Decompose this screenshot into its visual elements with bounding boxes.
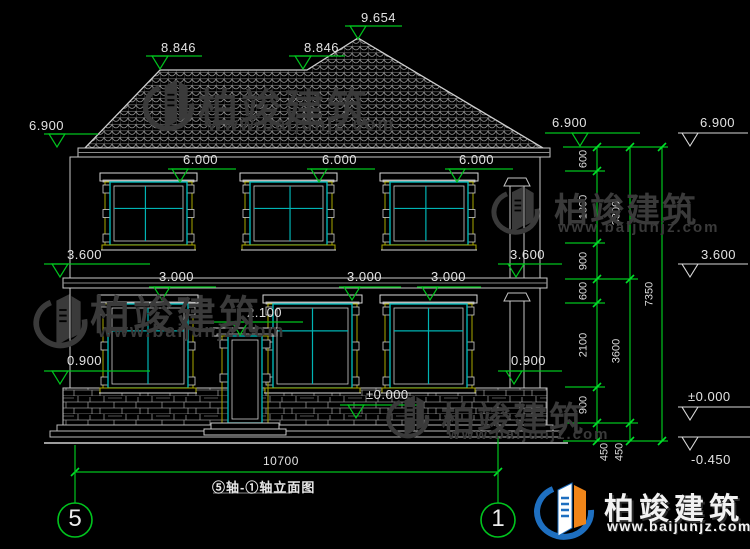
chain-dim: 3600 bbox=[612, 339, 623, 363]
axis-bubble-right-number: 1 bbox=[491, 505, 504, 533]
window-1f-right bbox=[380, 295, 477, 393]
elevation-label-w1-1: 3.000 bbox=[159, 270, 194, 283]
chain-dim: 600 bbox=[579, 150, 590, 168]
elevation-label-f2-far: 3.600 bbox=[701, 248, 736, 261]
axis-bubble-left-number: 5 bbox=[68, 505, 81, 533]
elevation-label-w1-3: 3.000 bbox=[431, 270, 466, 283]
elevation-label-w2-2: 6.000 bbox=[322, 153, 357, 166]
window-2f-right bbox=[380, 173, 478, 250]
watermark-site: www.baijunjz.com bbox=[448, 426, 609, 443]
window-2f-left bbox=[100, 173, 197, 250]
elevation-label-f2-left: 3.600 bbox=[67, 248, 102, 261]
elevation-label-sill-left: 0.900 bbox=[67, 354, 102, 367]
chain-dim: 7350 bbox=[645, 282, 656, 306]
window-2f-middle bbox=[240, 173, 337, 250]
chain-dim: 450 bbox=[615, 443, 626, 461]
chain-dim: 2100 bbox=[579, 333, 590, 357]
elevation-label-ridge-left: 8.846 bbox=[161, 41, 196, 54]
elevation-label-ridge-mid: 8.846 bbox=[304, 41, 339, 54]
footer-logo-icon bbox=[537, 483, 591, 537]
elevation-label-w2-1: 6.000 bbox=[183, 153, 218, 166]
elevation-label-sill-right: 0.900 bbox=[511, 354, 546, 367]
elevation-label-zero-far: ±0.000 bbox=[688, 390, 731, 403]
chain-dim: 900 bbox=[579, 252, 590, 270]
elevation-label-f2-right: 3.600 bbox=[510, 248, 545, 261]
elevation-label-zero-center: ±0.000 bbox=[366, 388, 409, 401]
elevation-label-w1-2: 3.000 bbox=[347, 270, 382, 283]
footer-logo-site: www.baijunjz.com bbox=[607, 518, 750, 534]
elevation-label-eave-right: 6.900 bbox=[552, 116, 587, 129]
drawing-title: ⑤轴-①轴立面图 bbox=[212, 477, 315, 496]
chain-dim: 600 bbox=[579, 282, 590, 300]
elevation-label-eave-left: 6.900 bbox=[29, 119, 64, 132]
elevation-label-peak: 9.654 bbox=[361, 11, 396, 24]
watermark-site: www.baijunjz.com bbox=[558, 219, 719, 236]
elevation-label-foundation: -0.450 bbox=[691, 453, 731, 466]
watermark-logo-icon bbox=[494, 186, 537, 232]
overall-width-dim: 10700 bbox=[263, 455, 299, 467]
elevation-label-eave-far: 6.900 bbox=[700, 116, 735, 129]
cad-elevation-sheet: 9.654 8.846 8.846 6.900 6.900 6.900 6.00… bbox=[0, 0, 750, 549]
elevation-label-w2-3: 6.000 bbox=[459, 153, 494, 166]
watermark-site: www.baijunjz.com bbox=[208, 114, 395, 135]
chain-dim: 450 bbox=[600, 443, 611, 461]
watermark-logo-icon bbox=[36, 294, 85, 345]
watermark-site: www.baijunjz.com bbox=[98, 321, 285, 342]
